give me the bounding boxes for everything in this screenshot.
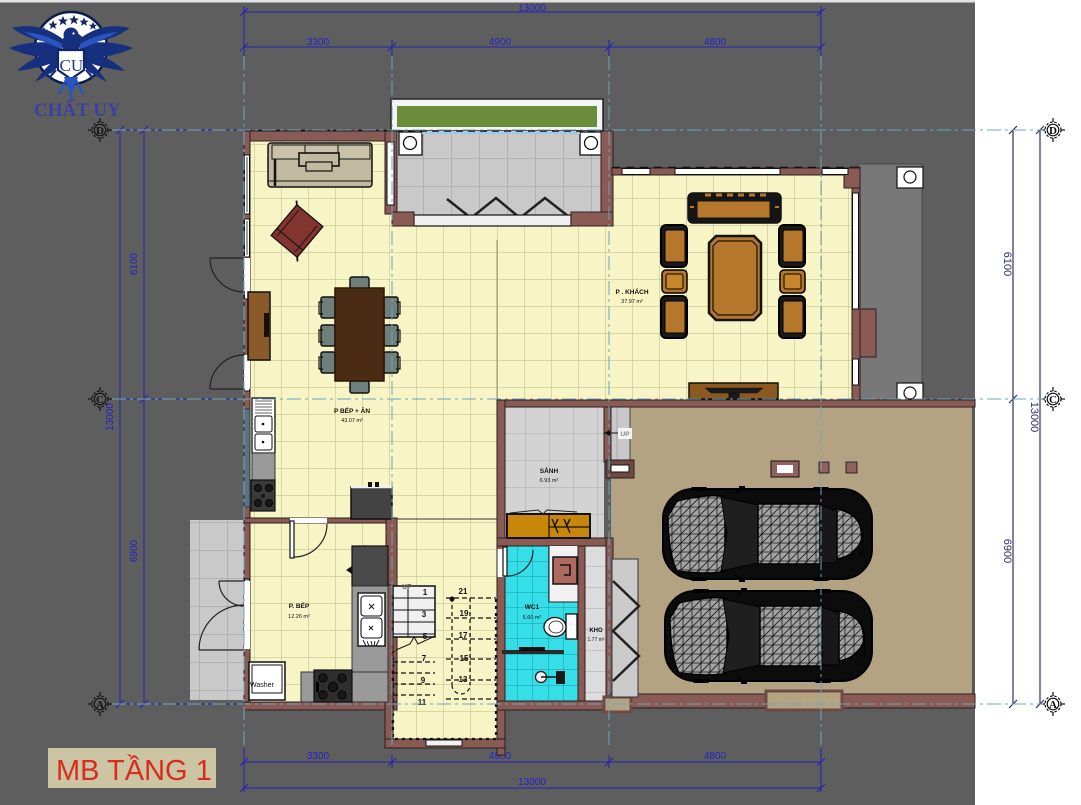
svg-text:7: 7 bbox=[422, 654, 427, 663]
svg-text:12.26 m²: 12.26 m² bbox=[288, 614, 310, 620]
svg-text:6.93 m²: 6.93 m² bbox=[540, 478, 559, 484]
svg-text:13: 13 bbox=[459, 675, 468, 684]
svg-text:A: A bbox=[1049, 699, 1057, 711]
svg-text:D: D bbox=[96, 125, 104, 137]
svg-text:MB TẦNG 1: MB TẦNG 1 bbox=[56, 753, 212, 787]
svg-text:5: 5 bbox=[423, 632, 428, 641]
svg-text:13000: 13000 bbox=[1028, 402, 1040, 433]
svg-text:Washer: Washer bbox=[250, 682, 275, 689]
svg-text:5.60 m²: 5.60 m² bbox=[523, 615, 542, 621]
svg-text:SẢNH: SẢNH bbox=[540, 466, 559, 475]
svg-text:11: 11 bbox=[418, 698, 427, 707]
svg-text:WC1: WC1 bbox=[525, 604, 540, 611]
svg-text:4900: 4900 bbox=[489, 37, 512, 48]
svg-text:A: A bbox=[96, 699, 104, 711]
svg-text:KHO: KHO bbox=[589, 628, 603, 634]
svg-text:CHẤT UY: CHẤT UY bbox=[34, 99, 121, 121]
svg-text:9: 9 bbox=[421, 676, 426, 685]
svg-text:17: 17 bbox=[459, 631, 468, 640]
svg-text:P . KHÁCH: P . KHÁCH bbox=[615, 287, 648, 296]
svg-text:6900: 6900 bbox=[1001, 539, 1013, 563]
svg-text:6100: 6100 bbox=[1001, 252, 1013, 276]
svg-text:13000: 13000 bbox=[518, 777, 546, 788]
svg-text:19: 19 bbox=[460, 609, 469, 618]
svg-text:15: 15 bbox=[460, 654, 469, 663]
svg-text:13000: 13000 bbox=[518, 3, 546, 14]
svg-text:4800: 4800 bbox=[704, 37, 727, 48]
svg-text:43.07 m²: 43.07 m² bbox=[341, 418, 363, 424]
svg-text:4800: 4800 bbox=[704, 751, 727, 762]
svg-text:3300: 3300 bbox=[307, 751, 330, 762]
svg-text:13000: 13000 bbox=[105, 403, 116, 431]
svg-text:37.97 m²: 37.97 m² bbox=[621, 299, 643, 305]
svg-text:1: 1 bbox=[423, 588, 428, 597]
svg-text:3: 3 bbox=[422, 610, 427, 619]
svg-text:3300: 3300 bbox=[307, 37, 330, 48]
svg-text:C: C bbox=[1049, 394, 1057, 406]
svg-text:C: C bbox=[96, 394, 104, 406]
svg-text:D: D bbox=[1049, 125, 1057, 137]
svg-text:1.77 m²: 1.77 m² bbox=[588, 637, 605, 643]
svg-text:CU: CU bbox=[60, 56, 84, 75]
svg-text:6100: 6100 bbox=[129, 252, 140, 275]
svg-text:21: 21 bbox=[459, 587, 468, 596]
svg-text:UP: UP bbox=[620, 431, 630, 438]
svg-text:UP: UP bbox=[402, 584, 412, 591]
svg-text:6900: 6900 bbox=[129, 539, 140, 562]
